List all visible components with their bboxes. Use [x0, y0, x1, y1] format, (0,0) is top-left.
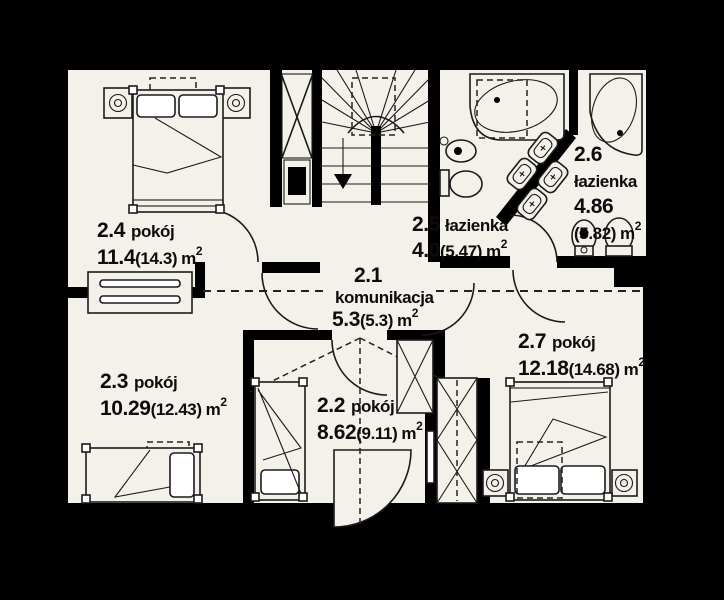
bed-post: [251, 378, 259, 386]
bed-post: [604, 378, 612, 386]
toilet-bowl: [450, 171, 482, 197]
radiator: [427, 431, 434, 483]
room-2-3-furniture: [82, 442, 202, 503]
exterior-door-leaf: [334, 450, 411, 527]
dresser-outline: [88, 272, 192, 313]
bed-post: [216, 205, 224, 213]
nightstand: [104, 88, 132, 118]
bed-post: [129, 205, 137, 213]
wall-segment: [262, 262, 320, 273]
stair-spine-wall: [371, 126, 381, 205]
room-title: 2.1: [354, 264, 383, 287]
basin-drain: [454, 147, 462, 155]
wall-segment: [243, 330, 254, 503]
wall-segment: [253, 330, 332, 340]
bed-post: [604, 493, 612, 501]
toilet-base: [606, 246, 632, 256]
pillow: [179, 95, 217, 117]
room-area: 4.86: [574, 195, 613, 218]
wall-segment: [270, 70, 282, 207]
floor-plan: 2.4pokój 11.4(14.3)m2 2.1 komunikacja 5.…: [0, 0, 724, 600]
room-title: 2.4pokój: [97, 219, 174, 242]
pillow: [137, 95, 175, 117]
bed-post: [299, 378, 307, 386]
room-title: 2.2pokój: [317, 394, 394, 417]
room-title: 2.5łazienka: [412, 213, 509, 236]
room-2-2-furniture: [251, 378, 307, 501]
bed-post: [506, 378, 514, 386]
flue-solid: [288, 167, 306, 195]
built-in-dresser: [88, 272, 192, 313]
bed-post: [129, 86, 137, 94]
room-title: 2.7pokój: [518, 330, 595, 353]
room-title: 2.6: [574, 143, 602, 166]
bed-post: [506, 493, 514, 501]
room-name: łazienka: [574, 172, 638, 191]
room-name: komunikacja: [335, 288, 435, 307]
nightstand: [222, 88, 250, 118]
dresser-slat: [100, 280, 180, 287]
bathtub-drain: [617, 130, 623, 136]
bathtub-drain: [494, 97, 500, 103]
wall-segment: [557, 256, 646, 268]
bed-post: [194, 495, 202, 503]
corner-bathtub: [470, 74, 564, 140]
bed-post: [82, 444, 90, 452]
floor-plan-canvas: 2.4pokój 11.4(14.3)m2 2.1 komunikacja 5.…: [0, 0, 724, 600]
bed-post: [82, 495, 90, 503]
bed-post: [251, 493, 259, 501]
bed-post: [216, 86, 224, 94]
bed-post: [299, 493, 307, 501]
room-title: 2.3pokój: [100, 370, 177, 393]
pillow: [515, 466, 559, 494]
wall-segment: [312, 70, 322, 207]
toilet-tank: [440, 170, 449, 196]
dresser-slat: [100, 296, 180, 303]
wall-segment: [569, 70, 578, 135]
pillow: [170, 453, 194, 497]
pillow: [561, 466, 605, 494]
bed-post: [194, 444, 202, 452]
